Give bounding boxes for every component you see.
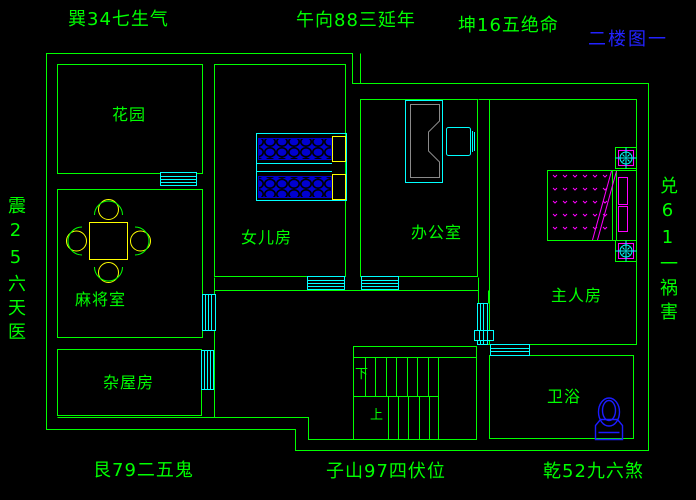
label-garden: 花园 xyxy=(112,107,146,123)
corridor-junction-window xyxy=(475,331,494,341)
label-left-side: 震25六天医 xyxy=(6,196,24,346)
label-right-side: 兑61一祸害 xyxy=(658,176,676,326)
label-bottom-center: 子山97四伏位 xyxy=(326,463,446,481)
label-top-right: 坤16五绝命 xyxy=(458,17,559,35)
bed-pillow xyxy=(333,137,346,162)
label-daughter-room: 女儿房 xyxy=(241,230,292,246)
nightstand-lamp xyxy=(616,148,637,169)
drawing-title: 二楼图一 xyxy=(588,31,668,49)
bed-pillow xyxy=(333,175,346,200)
master-pillow xyxy=(619,178,628,205)
label-top-left: 巽34七生气 xyxy=(68,11,169,29)
nightstand-lamp xyxy=(616,241,637,262)
mahjong-east-window xyxy=(203,295,216,331)
label-bathroom: 卫浴 xyxy=(547,389,581,405)
mahjong-table xyxy=(90,223,128,260)
bathroom-north-window xyxy=(491,345,530,356)
office-south-window xyxy=(362,277,399,290)
staircase xyxy=(354,347,477,440)
office-room-outline xyxy=(361,100,478,277)
master-pillow xyxy=(619,207,628,232)
mahjong-room-outline xyxy=(58,190,203,338)
floor-plan-canvas: 巽34七生气 午向88三延年 坤16五绝命 二楼图一 震25六天医 兑61一祸害… xyxy=(0,0,696,500)
label-mahjong-room: 麻将室 xyxy=(75,292,126,308)
toilet xyxy=(596,398,623,440)
storage-east-window xyxy=(202,351,214,390)
label-storage-room: 杂屋房 xyxy=(103,375,154,391)
label-master-room: 主人房 xyxy=(551,288,602,304)
label-stairs-down: 下 xyxy=(355,368,368,381)
garden-south-window xyxy=(161,173,197,186)
twin-beds xyxy=(257,134,347,201)
label-office: 办公室 xyxy=(411,225,462,241)
label-stairs-up: 上 xyxy=(370,409,383,422)
floor-plan-drawing xyxy=(0,0,696,500)
label-bottom-right: 乾52九六煞 xyxy=(543,463,644,481)
label-top-center: 午向88三延年 xyxy=(296,12,416,30)
mahjong-table-set xyxy=(67,200,151,283)
daughter-room-south-window xyxy=(308,277,345,290)
master-bed xyxy=(548,171,637,241)
office-desk xyxy=(406,101,443,183)
office-chair xyxy=(447,128,475,156)
label-bottom-left: 艮79二五鬼 xyxy=(93,462,194,480)
